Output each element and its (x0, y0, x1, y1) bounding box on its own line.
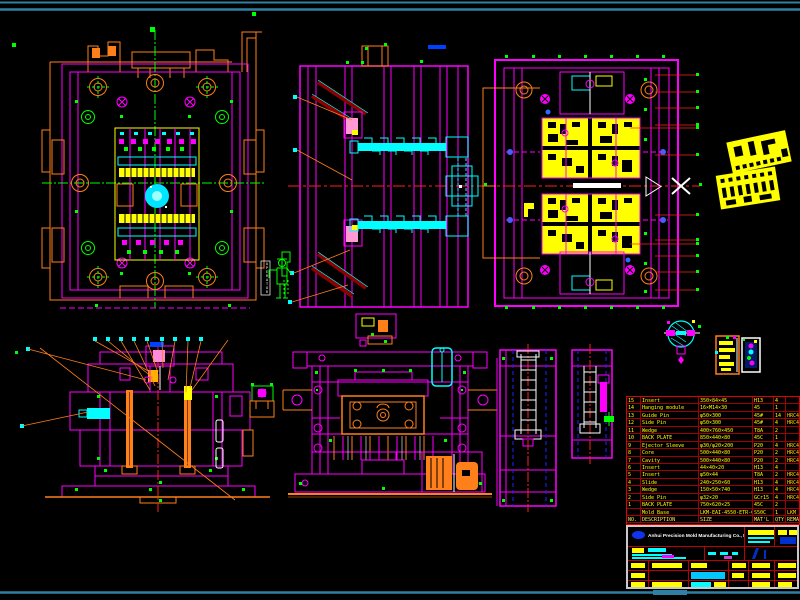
bom-cell-size: LKM-EAI-4550-ETR-CI (699, 509, 753, 515)
view-section-top-middle (282, 43, 487, 338)
bom-cell-remark (786, 434, 799, 440)
bom-cell-remark: HRC40-45 (786, 486, 799, 492)
bom-cell-name: BACK PLATE (641, 434, 699, 440)
bom-cell-name: Insert (641, 464, 699, 470)
bom-header-qty: QTY. (774, 516, 786, 522)
bom-cell-material: H13 (753, 479, 774, 485)
bom-cell-material: P20 (753, 449, 774, 455)
bom-row: 13 Guide Pin φ50×300 45# 14 HRC40-45 (627, 412, 799, 419)
bom-cell-qty: 4 (774, 479, 786, 485)
bom-cell-material: 45 (753, 404, 774, 410)
bom-cell-no: 12 (627, 419, 641, 425)
bom-header-mat: MAT'L (753, 516, 774, 522)
bom-cell-no: 15 (627, 397, 641, 403)
bom-cell-remark: HRC40-45 (786, 419, 799, 425)
bom-cell-name: Ejector Sleeve (641, 442, 699, 448)
bom-cell-qty: 1 (774, 434, 786, 440)
bom-cell-size: φ50×300 (699, 419, 753, 425)
operator-label: OPERATOR (261, 262, 271, 296)
ejector-assembly-top (350, 137, 468, 157)
bom-cell-name: Side Pin (641, 494, 699, 500)
stack-block-orange (715, 336, 739, 374)
view-section-bottom-left (15, 337, 270, 512)
cavity-block-upper (542, 118, 640, 178)
bom-cell-remark (786, 501, 799, 507)
bom-cell-size: 400×760×450 (699, 427, 753, 433)
bom-row: 4 Slide 240×250×60 H13 4 HRC40-45 (627, 479, 799, 486)
cad-sheet: OPERATOR 15 Insert 350×84×45 H13 4 14 Ha… (0, 0, 800, 600)
bom-cell-no: 7 (627, 457, 641, 463)
view-section-narrow-1 (497, 344, 556, 512)
bom-header-no: NO. (627, 516, 641, 522)
bom-row: 6 Insert 44×40×20 H13 4 (627, 464, 799, 471)
bom-cell-material: H13 (753, 397, 774, 403)
bom-cell-material: T8A (753, 427, 774, 433)
cavity-block-lower (542, 194, 640, 254)
bom-cell-qty: 2 (774, 501, 786, 507)
bom-cell-material: 45C (753, 501, 774, 507)
bom-cell-qty: 4 (774, 486, 786, 492)
view-front-bottom-middle (283, 336, 497, 497)
bom-cell-size: 16×M14×30 (699, 404, 753, 410)
bom-cell-material: 45# (753, 412, 774, 418)
bom-cell-name: Wedge (641, 486, 699, 492)
bom-cell-name: Mold Base (641, 509, 699, 515)
bom-cell-remark (786, 427, 799, 433)
bom-cell-name: Hanging module (641, 404, 699, 410)
product-part-drawing-1 (726, 130, 791, 174)
bom-cell-size: 150×50×740 (699, 486, 753, 492)
bom-cell-name: Core (641, 449, 699, 455)
bom-cell-remark: HRC40-45 (786, 471, 799, 477)
stack-block-white (742, 338, 760, 372)
bom-row: 15 Insert 350×84×45 H13 4 (627, 397, 799, 404)
bom-cell-qty: 1 (774, 404, 786, 410)
bom-cell-remark: HRC40-45 (786, 457, 799, 463)
bom-cell-remark (786, 404, 799, 410)
bom-cell-qty: 4 (774, 464, 786, 470)
bom-cell-material: P20 (753, 457, 774, 463)
bom-row: Mold Base LKM-EAI-4550-ETR-CI S50C 1 LKM (627, 509, 799, 516)
bom-cell-no: 8 (627, 449, 641, 455)
bom-cell-no: 2 (627, 494, 641, 500)
product-part-drawing-2 (716, 167, 781, 210)
ejector-assembly-bottom (350, 216, 468, 236)
bom-cell-material: T8A (753, 471, 774, 477)
bom-table: 15 Insert 350×84×45 H13 4 14 Hanging mod… (626, 396, 800, 525)
bom-row: 11 Wedge 400×760×450 T8A 2 (627, 427, 799, 434)
bom-cell-no: 13 (627, 412, 641, 418)
bom-cell-size: 500×440×80 (699, 457, 753, 463)
bom-cell-name: Cavity (641, 457, 699, 463)
bom-cell-no: 1 (627, 501, 641, 507)
bom-cell-size: φ50×300 (699, 412, 753, 418)
bom-row: 5 Insert φ50×44 T8A 2 HRC40-45 (627, 471, 799, 478)
bom-cell-qty: 4 (774, 442, 786, 448)
bom-cell-no: 5 (627, 471, 641, 477)
bom-cell-material: 45# (753, 419, 774, 425)
bom-cell-size: φ32×20 (699, 494, 753, 500)
bom-cell-material: S50C (753, 509, 774, 515)
bom-cell-size: φ50×44 (699, 471, 753, 477)
bom-cell-name: Wedge (641, 427, 699, 433)
bom-cell-material: 45C (753, 434, 774, 440)
bom-cell-qty: 4 (774, 397, 786, 403)
bom-cell-size: 350×84×45 (699, 397, 753, 403)
bom-cell-material: P20 (753, 442, 774, 448)
bom-cell-material: GCr15 (753, 494, 774, 500)
bom-cell-material: H13 (753, 486, 774, 492)
bom-cell-name: Slide (641, 479, 699, 485)
bom-cell-name: BACK PLATE (641, 501, 699, 507)
bom-row: 14 Hanging module 16×M14×30 45 1 (627, 404, 799, 411)
bom-cell-material: H13 (753, 464, 774, 470)
view-plan-top-left (12, 12, 264, 308)
company-name: Anhui Precision Mold Manufacturing Co., … (648, 531, 744, 543)
bom-row: 3 Wedge 150×50×740 H13 4 HRC40-45 (627, 486, 799, 493)
bom-header-remark: REMARK (786, 516, 799, 522)
bom-rows: 15 Insert 350×84×45 H13 4 14 Hanging mod… (627, 397, 799, 516)
bom-row: 7 Cavity 500×440×80 P20 2 HRC40-45 (627, 457, 799, 464)
bom-header-row: NO. DESCRIPTION SIZE MAT'L QTY. REMARK (627, 516, 799, 523)
bom-cell-size: φ30/φ20×200 (699, 442, 753, 448)
bom-cell-name: Guide Pin (641, 412, 699, 418)
bom-row: 2 Side Pin φ32×20 GCr15 4 HRC48-52 (627, 494, 799, 501)
bom-cell-size: 44×40×20 (699, 464, 753, 470)
bom-row: 10 BACK PLATE 850×440×80 45C 1 (627, 434, 799, 441)
bom-row: 1 BACK PLATE 750×620×25 45C 2 (627, 501, 799, 508)
bom-row: 8 Core 500×440×80 P20 2 HRC40-45 (627, 449, 799, 456)
company-logo (632, 531, 645, 539)
bom-cell-size: 500×440×80 (699, 449, 753, 455)
view-section-narrow-2 (572, 344, 614, 464)
bom-cell-name: Insert (641, 471, 699, 477)
bom-cell-no: 3 (627, 486, 641, 492)
bom-cell-name: Insert (641, 397, 699, 403)
bom-cell-qty: 1 (774, 509, 786, 515)
title-field-bar (748, 530, 774, 535)
bom-cell-size: 240×250×60 (699, 479, 753, 485)
sphere-detail (664, 320, 701, 364)
bom-cell-remark: HRC40-45 (786, 479, 799, 485)
bom-cell-qty: 4 (774, 419, 786, 425)
bom-cell-qty: 2 (774, 457, 786, 463)
bom-row: 12 Side Pin φ50×300 45# 4 HRC40-45 (627, 419, 799, 426)
bom-cell-remark: HRC40-45 (786, 449, 799, 455)
bom-cell-remark (786, 464, 799, 470)
bom-cell-qty: 2 (774, 427, 786, 433)
bom-cell-remark: HRC40-45 (786, 412, 799, 418)
title-block: Anhui Precision Mold Manufacturing Co., … (626, 525, 799, 589)
bom-cell-qty: 14 (774, 412, 786, 418)
bom-cell-name: Side Pin (641, 419, 699, 425)
bom-cell-size: 750×620×25 (699, 501, 753, 507)
view-plan-top-right (482, 55, 702, 309)
bom-cell-no: 9 (627, 442, 641, 448)
bom-cell-qty: 2 (774, 471, 786, 477)
detail-view-small (250, 383, 274, 417)
bom-row: 9 Ejector Sleeve φ30/φ20×200 P20 4 HRC40… (627, 442, 799, 449)
bom-cell-remark: HRC40-45 (786, 442, 799, 448)
bom-cell-no (627, 509, 641, 515)
bom-cell-size: 850×440×80 (699, 434, 753, 440)
bom-cell-remark (786, 397, 799, 403)
bom-header-name: DESCRIPTION (641, 516, 699, 522)
bom-cell-no: 6 (627, 464, 641, 470)
bom-cell-qty: 4 (774, 494, 786, 500)
bom-cell-qty: 2 (774, 449, 786, 455)
bom-cell-no: 14 (627, 404, 641, 410)
bom-cell-remark: HRC48-52 (786, 494, 799, 500)
bom-cell-remark: LKM (786, 509, 799, 515)
bom-header-size: SIZE (699, 516, 753, 522)
bom-cell-no: 4 (627, 479, 641, 485)
bom-cell-no: 10 (627, 434, 641, 440)
bom-cell-no: 11 (627, 427, 641, 433)
